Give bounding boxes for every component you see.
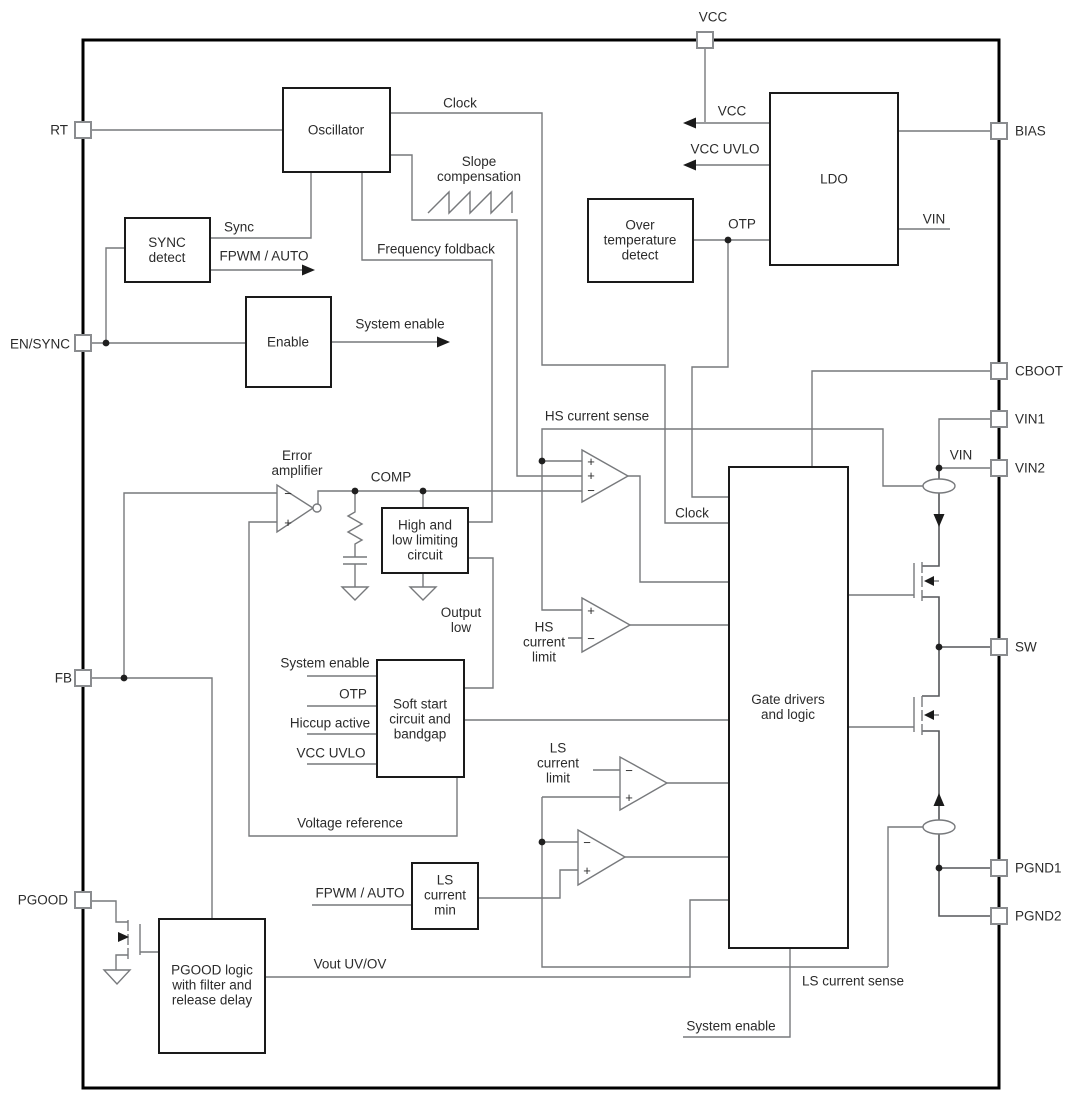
wire-slope-compensation (390, 155, 582, 476)
junction-dot (539, 839, 546, 846)
junction-dot (121, 675, 128, 682)
minus-glyph: − (587, 483, 595, 498)
pin-cboot (991, 363, 1007, 379)
pin-vin2 (991, 460, 1007, 476)
arrowhead-vcc-uvlo (683, 160, 696, 171)
junction-dot (725, 237, 732, 244)
hs-mosfet-icon (848, 562, 922, 601)
wire-soft-start-inputs (307, 676, 377, 764)
arrowhead-fpwm-auto (302, 265, 315, 276)
wire-otp (692, 240, 770, 497)
ground-icon (342, 587, 368, 600)
ground-icon (104, 970, 130, 984)
plus-glyph: + (625, 790, 633, 805)
high-low-limiting-block (382, 508, 468, 573)
wire-pwm-out (628, 476, 729, 582)
plus-glyph: + (587, 468, 595, 483)
pin-pgood (75, 892, 91, 908)
minus-glyph: − (625, 763, 633, 778)
oscillator-block (283, 88, 390, 172)
ls-current-sensor-icon (923, 820, 955, 834)
junction-dot (936, 865, 943, 872)
plus-glyph: + (583, 863, 591, 878)
minus-glyph: − (284, 486, 292, 501)
gate-drivers-block (729, 467, 848, 948)
wire-output-low (464, 558, 493, 688)
error-amplifier-output-node (313, 504, 321, 512)
plus-glyph: + (587, 454, 595, 469)
pin-pgnd1 (991, 860, 1007, 876)
pin-vin1 (991, 411, 1007, 427)
ls-current-min-block (412, 863, 478, 929)
junction-dot (103, 340, 110, 347)
pin-bias (991, 123, 1007, 139)
error-amplifier-icon (277, 485, 313, 532)
arrowhead-system-enable (437, 337, 450, 348)
pin-vcc (697, 32, 713, 48)
pin-sw (991, 639, 1007, 655)
junction-dot (936, 465, 943, 472)
over-temperature-block (588, 199, 693, 282)
enable-block (246, 297, 331, 387)
sawtooth-waveform-icon (428, 192, 512, 213)
ls-mosfet-icon (848, 696, 922, 735)
pin-en-sync (75, 335, 91, 351)
wire-system-enable-bottom (683, 948, 790, 1037)
arrowhead-vcc (683, 118, 696, 129)
junction-dot (420, 488, 427, 495)
plus-glyph: + (587, 603, 595, 618)
hs-current-sensor-icon (923, 479, 955, 493)
pin-fb (75, 670, 91, 686)
ldo-block (770, 93, 898, 265)
ground-icon (410, 587, 436, 600)
plus-glyph: + (284, 515, 292, 530)
pgood-logic-block (159, 919, 265, 1053)
pin-rt (75, 122, 91, 138)
comp-rc-network-icon (343, 491, 367, 587)
sync-detect-block (125, 218, 210, 282)
junction-dot (539, 458, 546, 465)
minus-glyph: − (587, 631, 595, 646)
wire-vout-uv-ov (265, 900, 729, 977)
minus-glyph: − (583, 835, 591, 850)
junction-dot (936, 644, 943, 651)
wire-power-path (922, 468, 991, 916)
junction-dot (352, 488, 359, 495)
functional-block-diagram: − + + + − + − − + − + VCC RT EN/SYNC FB … (0, 0, 1079, 1100)
ls-mosfet-arrow-icon (924, 710, 934, 720)
diagram-canvas: − + + + − + − − + − + (0, 0, 1079, 1100)
hs-mosfet-arrow-icon (924, 576, 934, 586)
wire-sync (210, 172, 311, 238)
pin-pgnd2 (991, 908, 1007, 924)
soft-start-block (377, 660, 464, 777)
wire-vin1-vin2 (939, 419, 991, 468)
arrowhead-current-up (934, 793, 945, 806)
arrowhead-current-down (934, 514, 945, 527)
wire-frequency-foldback (362, 172, 492, 522)
